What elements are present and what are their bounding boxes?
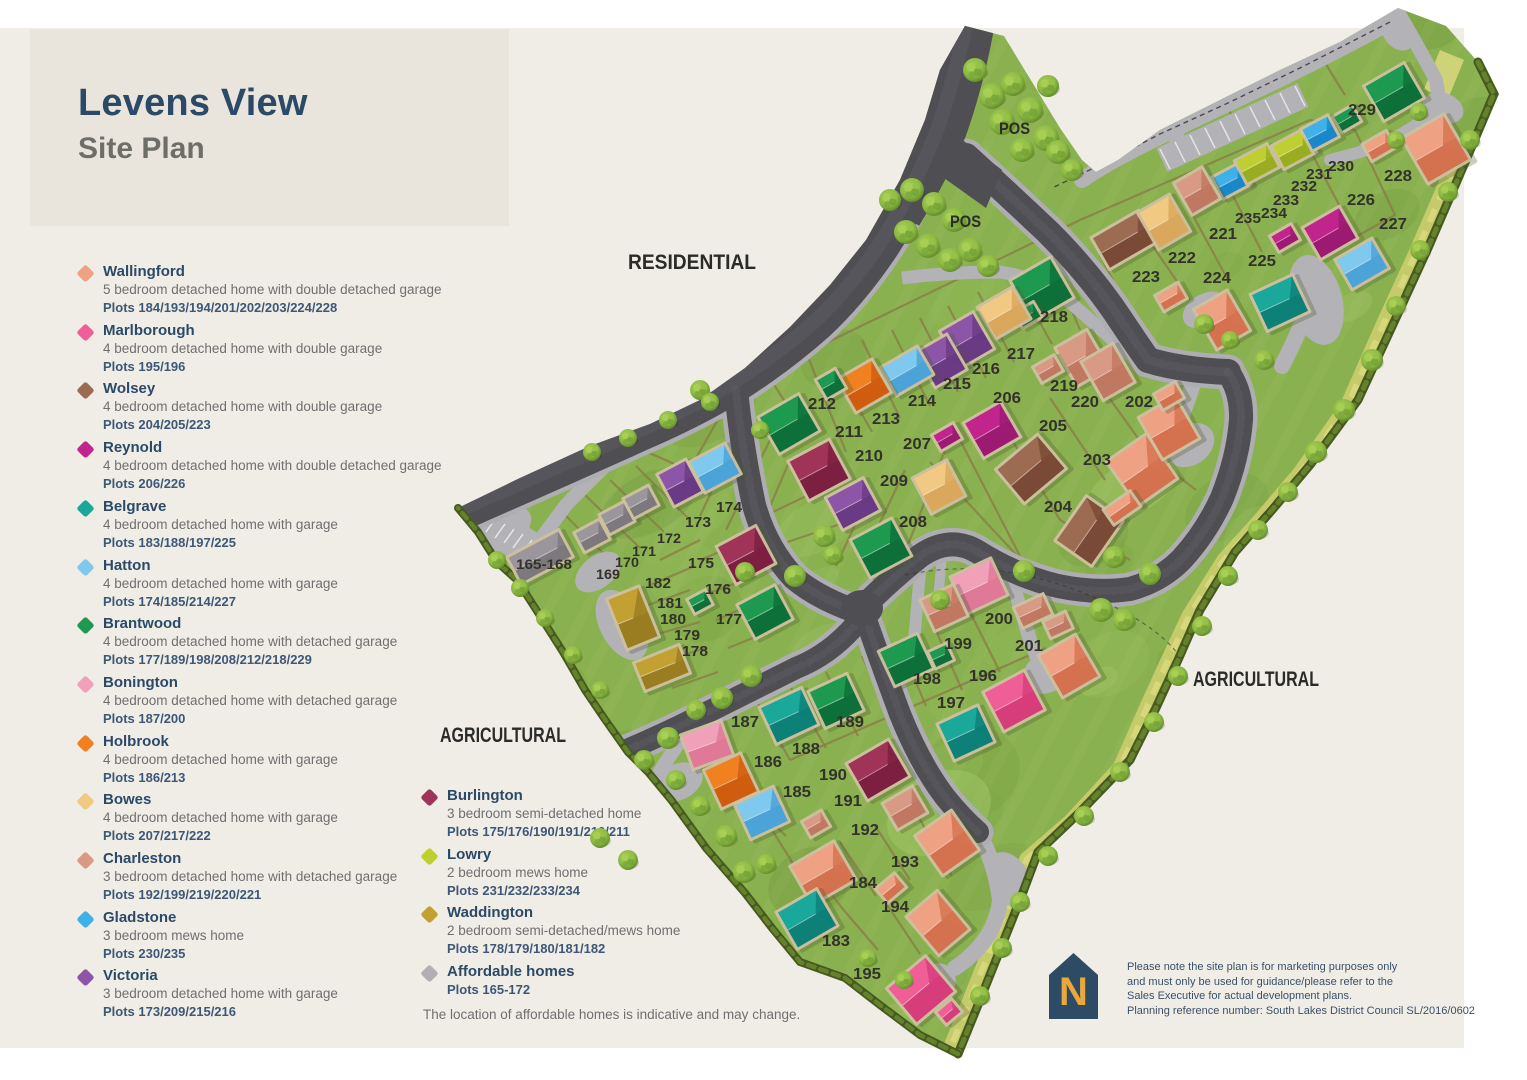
- svg-text:202: 202: [1125, 394, 1153, 411]
- svg-text:187: 187: [731, 714, 759, 731]
- svg-text:177: 177: [716, 611, 742, 628]
- svg-text:183: 183: [822, 933, 850, 950]
- svg-text:174: 174: [716, 499, 743, 516]
- svg-text:185: 185: [783, 784, 811, 801]
- svg-text:217: 217: [1007, 346, 1035, 363]
- svg-text:178: 178: [682, 643, 708, 660]
- svg-text:223: 223: [1132, 269, 1160, 286]
- svg-text:172: 172: [657, 530, 681, 546]
- svg-text:212: 212: [808, 396, 836, 413]
- svg-text:184: 184: [849, 875, 877, 892]
- svg-text:192: 192: [851, 822, 879, 839]
- svg-text:229: 229: [1348, 102, 1376, 119]
- svg-text:235: 235: [1235, 210, 1261, 227]
- svg-text:188: 188: [792, 741, 820, 758]
- svg-text:200: 200: [985, 611, 1013, 628]
- svg-text:195: 195: [853, 966, 881, 983]
- svg-text:213: 213: [872, 411, 900, 428]
- svg-text:205: 205: [1039, 418, 1067, 435]
- svg-text:173: 173: [685, 514, 711, 531]
- svg-text:208: 208: [899, 514, 927, 531]
- svg-text:POS: POS: [950, 213, 981, 231]
- svg-text:199: 199: [944, 636, 972, 653]
- svg-text:206: 206: [993, 390, 1021, 407]
- svg-text:218: 218: [1040, 309, 1068, 326]
- svg-text:AGRICULTURAL: AGRICULTURAL: [440, 724, 566, 747]
- svg-text:176: 176: [705, 581, 731, 598]
- svg-text:203: 203: [1083, 452, 1111, 469]
- svg-text:226: 226: [1347, 192, 1375, 209]
- svg-text:165-168: 165-168: [516, 556, 572, 572]
- svg-text:211: 211: [835, 424, 863, 441]
- svg-text:182: 182: [645, 575, 671, 592]
- svg-text:219: 219: [1050, 378, 1078, 395]
- svg-text:234: 234: [1261, 205, 1288, 222]
- svg-text:221: 221: [1209, 226, 1237, 243]
- svg-text:179: 179: [674, 627, 700, 644]
- svg-text:193: 193: [891, 854, 919, 871]
- svg-text:175: 175: [688, 555, 714, 572]
- svg-text:210: 210: [855, 448, 883, 465]
- svg-text:209: 209: [880, 473, 908, 490]
- svg-text:191: 191: [834, 793, 862, 810]
- svg-text:204: 204: [1044, 499, 1072, 516]
- svg-text:216: 216: [972, 361, 1000, 378]
- svg-text:224: 224: [1203, 270, 1231, 287]
- svg-text:189: 189: [836, 714, 864, 731]
- svg-text:196: 196: [969, 668, 997, 685]
- svg-text:171: 171: [632, 543, 656, 559]
- svg-text:186: 186: [754, 754, 782, 771]
- svg-text:N: N: [1059, 970, 1088, 1014]
- svg-text:228: 228: [1384, 168, 1412, 185]
- svg-text:222: 222: [1168, 250, 1196, 267]
- svg-text:227: 227: [1379, 216, 1407, 233]
- svg-text:181: 181: [657, 595, 683, 612]
- svg-text:190: 190: [819, 767, 847, 784]
- svg-text:RESIDENTIAL: RESIDENTIAL: [628, 251, 756, 274]
- svg-text:201: 201: [1015, 638, 1043, 655]
- svg-text:214: 214: [908, 393, 936, 410]
- svg-text:207: 207: [903, 436, 931, 453]
- svg-text:194: 194: [881, 899, 909, 916]
- svg-text:AGRICULTURAL: AGRICULTURAL: [1193, 668, 1319, 691]
- svg-text:POS: POS: [999, 120, 1030, 138]
- svg-text:180: 180: [660, 611, 686, 628]
- svg-text:225: 225: [1248, 253, 1276, 270]
- svg-text:198: 198: [913, 671, 941, 688]
- svg-text:220: 220: [1071, 394, 1099, 411]
- svg-text:215: 215: [943, 376, 971, 393]
- svg-text:197: 197: [937, 695, 965, 712]
